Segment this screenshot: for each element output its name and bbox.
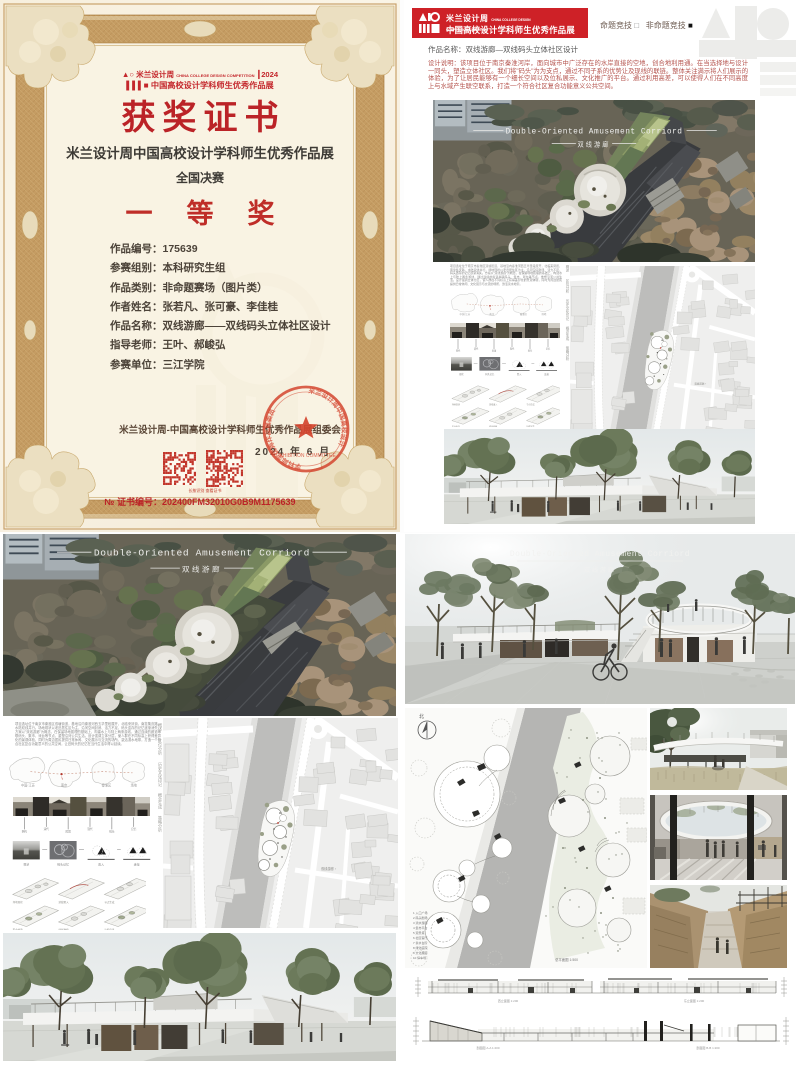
svg-text:4 集市平台: 4 集市平台 <box>413 925 428 930</box>
svg-text:西立面图 1:200: 西立面图 1:200 <box>498 998 519 1003</box>
svg-text:双线游廊: 双线游廊 <box>584 566 616 574</box>
svg-text:学科师生优秀作品展委员: 学科师生优秀作品展委员 <box>263 407 302 472</box>
svg-text:北: 北 <box>419 713 424 720</box>
svg-text:双线游廊: 双线游廊 <box>182 565 222 575</box>
svg-text:10 停车场: 10 停车场 <box>413 955 426 960</box>
svg-text:8 绿化庭院: 8 绿化庭院 <box>413 945 428 950</box>
svg-text:5 观景塔: 5 观景塔 <box>413 930 425 935</box>
svg-text:总平面图 1:500: 总平面图 1:500 <box>555 957 578 962</box>
svg-text:6 社区客厅: 6 社区客厅 <box>413 935 428 940</box>
svg-text:Double-Oriented Amusement Corr: Double-Oriented Amusement Corriord <box>94 548 310 559</box>
svg-text:剖面图 A-A 1:200: 剖面图 A-A 1:200 <box>476 1045 499 1050</box>
svg-text:2 码头剧场: 2 码头剧场 <box>413 915 428 920</box>
svg-text:东立面图 1:200: 东立面图 1:200 <box>684 998 705 1003</box>
svg-text:剖面图 B-B 1:200: 剖面图 B-B 1:200 <box>696 1045 720 1050</box>
svg-text:9 文化展廊: 9 文化展廊 <box>413 950 428 955</box>
svg-text:EXHIBITION COMMITTEE: EXHIBITION COMMITTEE <box>276 453 336 459</box>
svg-text:3 滨水游廊: 3 滨水游廊 <box>413 920 428 925</box>
svg-text:米兰设计周中国高校设计: 米兰设计周中国高校设计 <box>308 386 349 449</box>
svg-text:1 入口广场: 1 入口广场 <box>413 910 428 915</box>
svg-text:Double-Oriented Amusement Corr: Double-Oriented Amusement Corriord <box>506 127 683 136</box>
svg-text:7 亲水台阶: 7 亲水台阶 <box>413 940 428 945</box>
svg-text:双线游廊: 双线游廊 <box>578 140 611 149</box>
svg-text:Double-Oriented Amusement Corr: Double-Oriented Amusement Corriord <box>510 550 690 559</box>
